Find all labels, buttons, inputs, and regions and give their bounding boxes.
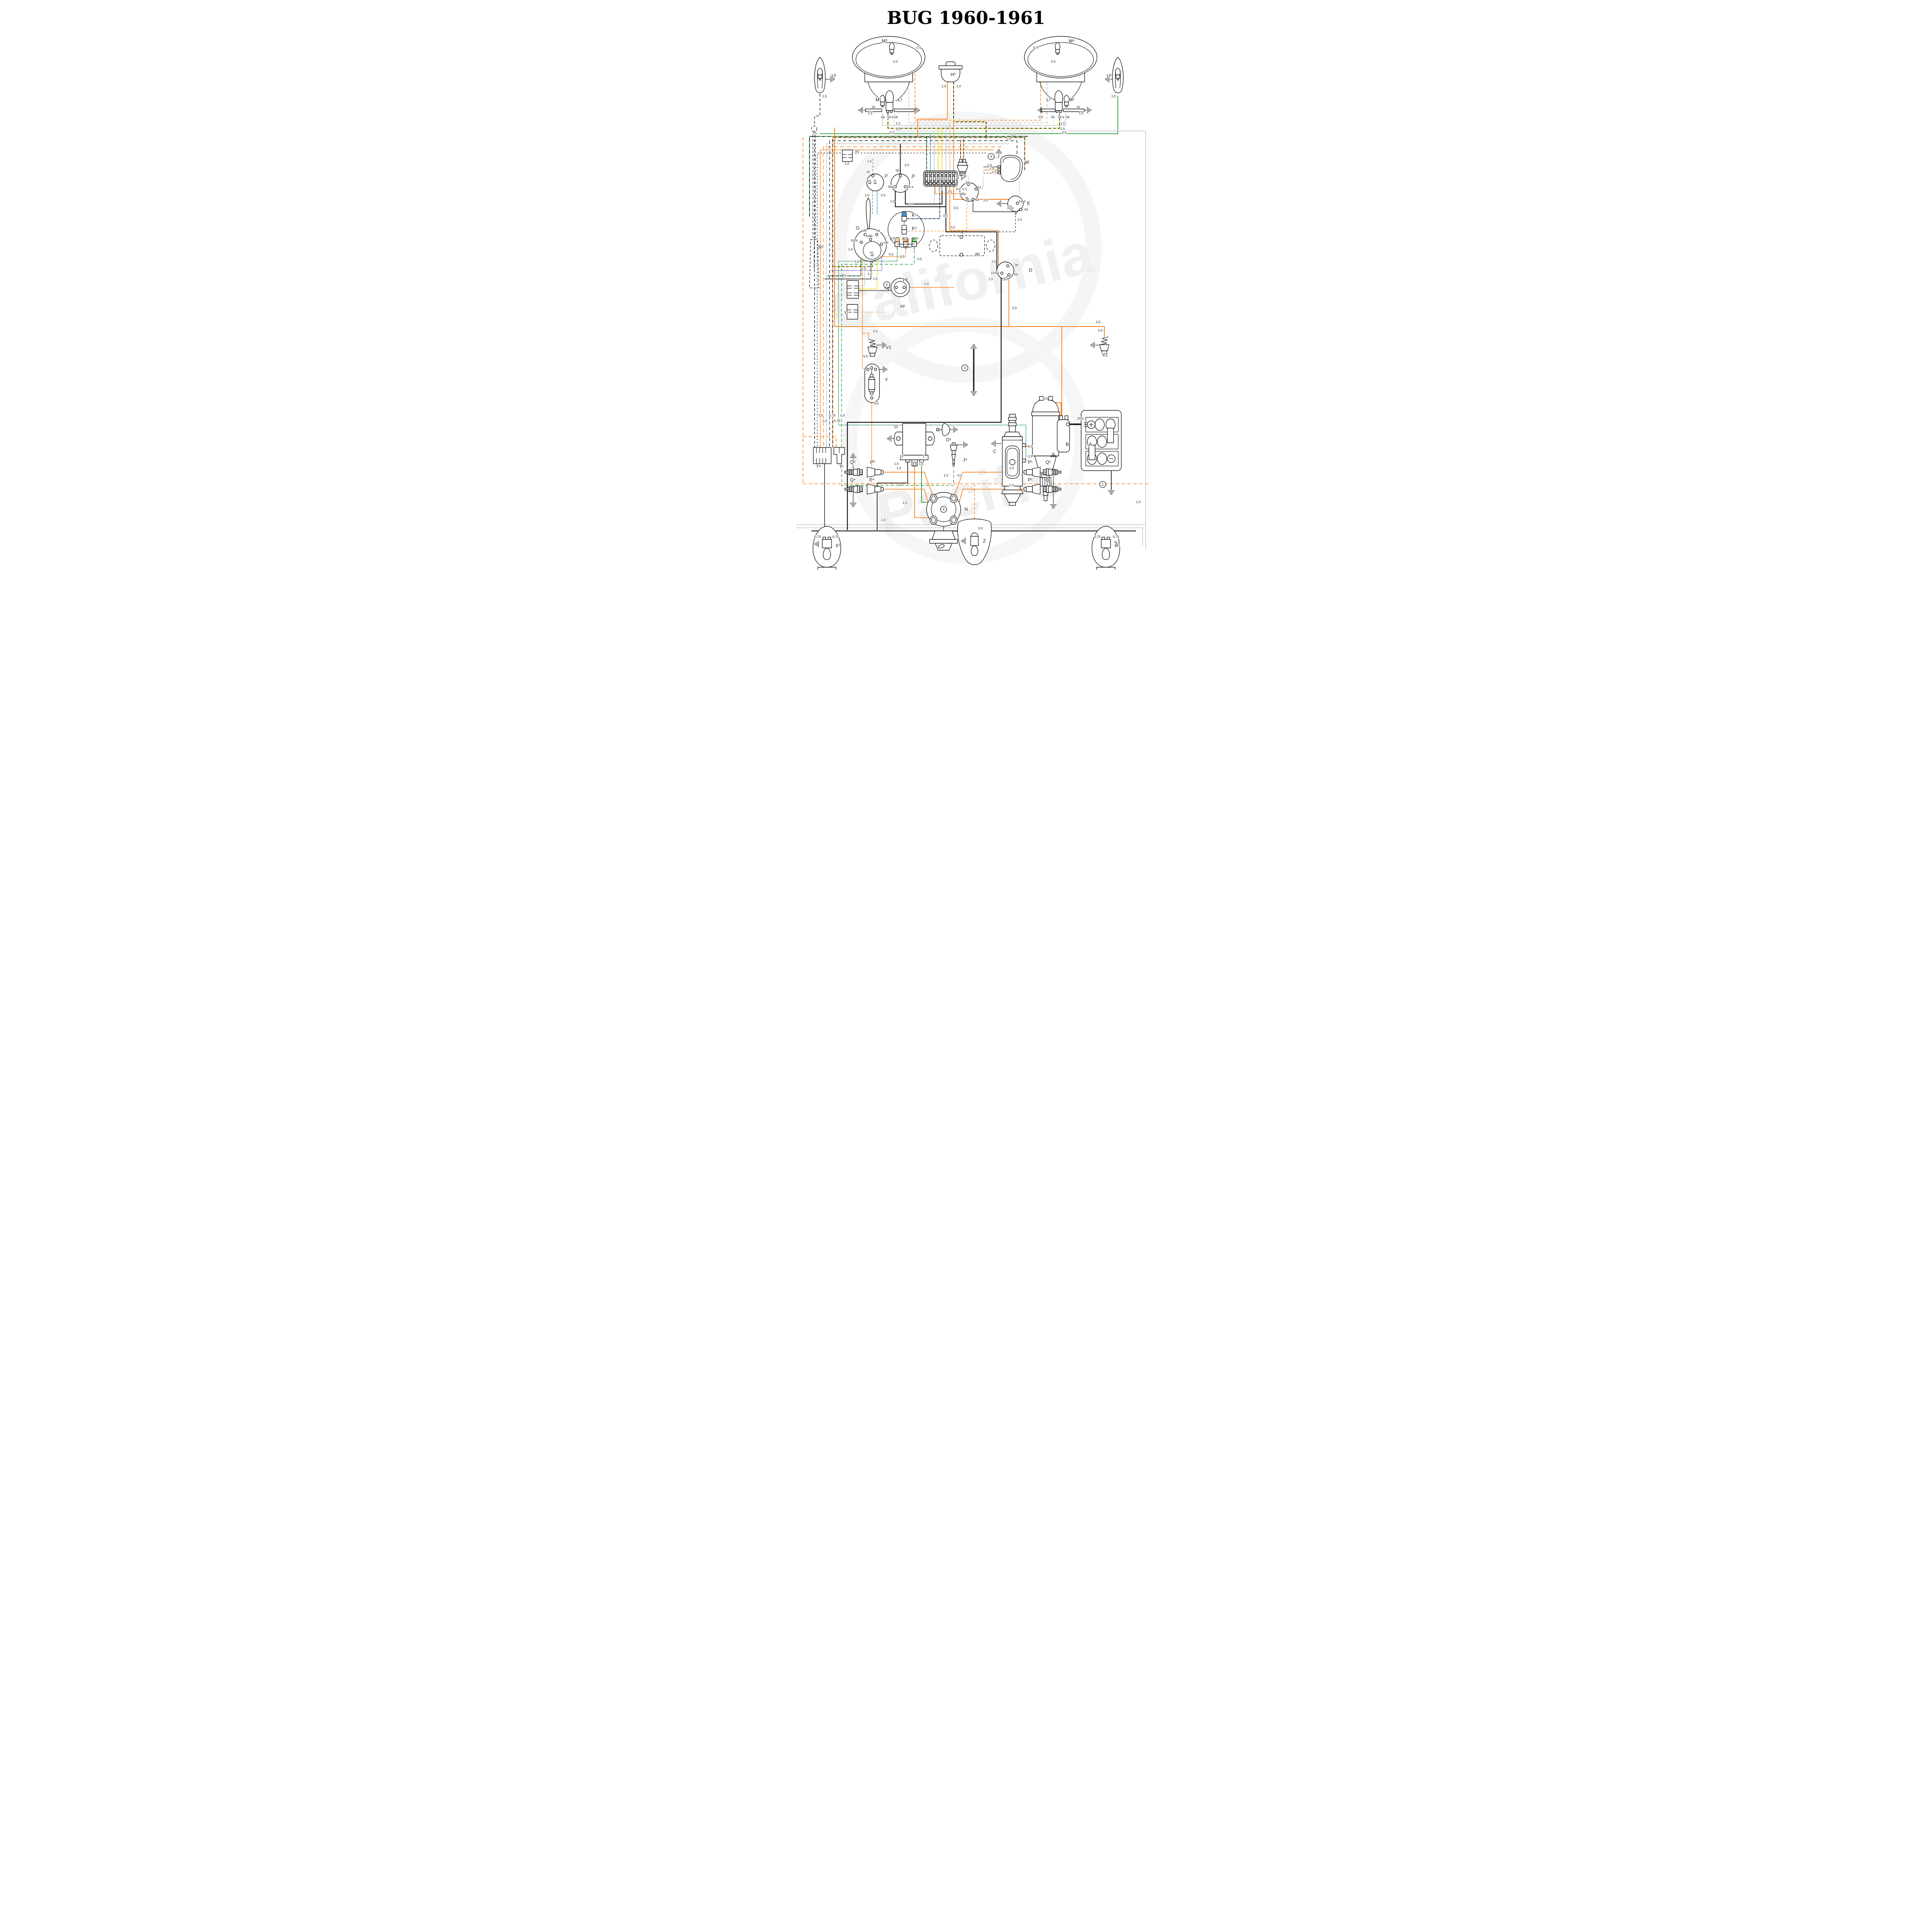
wire-gauge-label: 1,0 xyxy=(873,277,878,281)
wire-gauge-label: 1,5 xyxy=(867,159,872,163)
component-label: F xyxy=(961,176,964,182)
wire-gauge-label: 58 xyxy=(1066,115,1070,119)
wire-gauge-label: 1,0 xyxy=(1136,500,1141,504)
wire-gauge-label: 1,0 xyxy=(881,518,886,522)
callout-number: 4 xyxy=(942,507,944,511)
component-label: P⁴ xyxy=(869,477,874,483)
component-label: H¹ xyxy=(900,304,905,309)
ground-icon xyxy=(964,442,967,448)
wire-stripe xyxy=(954,82,986,139)
wire-gauge-label: 1,0 xyxy=(867,272,872,276)
wire-gauge-label: 1,0 xyxy=(896,466,901,470)
wire-gauge-label: 57 xyxy=(978,185,981,189)
wire-gauge-label: 1,5 xyxy=(1060,121,1065,125)
component-label: P³ xyxy=(870,459,875,465)
oil-pressure-switch-j4 xyxy=(950,443,957,466)
component-label: J¹ xyxy=(884,173,888,179)
wire-gauge-label: 2,5 xyxy=(1012,306,1017,310)
wire-gauge-label: 1,0 xyxy=(1011,132,1015,136)
component-label: P¹ xyxy=(1028,459,1032,465)
component-label: T² xyxy=(855,150,859,155)
wire-gauge-label: 58 b xyxy=(959,192,966,196)
wire-gauge-label: 1 xyxy=(923,454,925,458)
coil-o xyxy=(894,423,934,466)
wire-gauge-label: 1,5 xyxy=(938,187,943,191)
diagram-title: BUG 1960-1961 xyxy=(887,7,1045,28)
connector-t3-bottom xyxy=(813,447,831,464)
wire-gauge-label: 1,5 xyxy=(962,187,967,191)
wire-gauge-label: 54 d xyxy=(1019,199,1026,203)
component-label: X¹ xyxy=(835,543,840,548)
wire-gauge-label: 50 xyxy=(1014,272,1018,276)
component-label: A xyxy=(1089,442,1092,447)
wire-gauge-label: 2,5 xyxy=(992,260,996,264)
battery-minus-terminal xyxy=(1107,455,1115,463)
suppressor-v2 xyxy=(1100,337,1109,354)
battery-a xyxy=(1081,410,1121,471)
connector-t3-mid xyxy=(847,281,859,298)
wire-gauge-label: 1,0 xyxy=(924,282,929,286)
component-label: L² xyxy=(1046,97,1051,102)
wire-gauge-label: 1,5 xyxy=(868,111,872,115)
component-label: Q¹ xyxy=(1046,459,1051,465)
wire-gauge-label: 0,75 xyxy=(815,535,821,539)
wire-gauge-label: 0,75 xyxy=(1094,535,1101,539)
bug-1960-1961-wiring-diagram: California Pacific BUG 1960-1961 xyxy=(773,0,1159,570)
component-label: M³ xyxy=(882,38,887,44)
lamp-k2 xyxy=(895,237,900,250)
wire-gauge-label: HL xyxy=(876,229,881,233)
wire-gauge-label: 1,0 xyxy=(992,170,997,174)
ground-icon xyxy=(916,107,919,113)
wire-gauge-label: 1,0 xyxy=(956,84,961,88)
ground-icon xyxy=(1108,491,1114,494)
component-label: K¹ xyxy=(912,213,917,218)
component-label: L¹ xyxy=(898,97,902,102)
component-label: D xyxy=(1029,267,1032,273)
component-label: U² xyxy=(1107,73,1112,78)
ground-icon xyxy=(1091,342,1094,348)
wire-gauge-label: 0.5 xyxy=(1033,46,1038,49)
callout-number: 3 xyxy=(964,366,966,370)
plug-connector-p3 xyxy=(867,467,883,477)
wire-gauge-label: 0.5 xyxy=(1051,60,1056,63)
wiper-motor-w xyxy=(998,155,1022,182)
watermark: California Pacific xyxy=(824,120,1099,556)
wire-gauge-label: 1,0 xyxy=(861,267,866,270)
ground-icon xyxy=(850,503,856,507)
wire-gauge-label: 6,0 xyxy=(1043,396,1048,400)
headlight-bulb-l2 xyxy=(1055,90,1063,112)
wire-gauge-label: 0,5 xyxy=(1039,115,1043,119)
component-label: Q³ xyxy=(850,459,855,465)
fuse-box-s xyxy=(923,171,957,186)
wire-gauge-label: 0,5 xyxy=(890,131,895,134)
connector-t2-mid xyxy=(847,304,858,319)
wire-gauge-label: 0,5 xyxy=(900,255,905,259)
switch-j2 xyxy=(891,174,910,192)
wire-gauge-label: VL xyxy=(870,251,874,255)
wire-gauge-label: 0,5 xyxy=(881,193,886,197)
wire-gauge-label: 1,0 xyxy=(1017,218,1022,221)
wire-gauge-label: 0,75 xyxy=(834,419,840,423)
interior-light-y xyxy=(865,364,879,403)
vacuum-unit-o1 xyxy=(937,423,950,436)
wire-gauge-label: 6,0 xyxy=(1004,277,1009,281)
wire-gauge-label: 54 xyxy=(1024,207,1028,211)
ground-icon xyxy=(971,392,977,395)
wire-gauge-label: 1,5 xyxy=(894,462,899,466)
semaphore-u2 xyxy=(1112,57,1123,93)
ground-icon xyxy=(971,345,977,348)
ground-icon xyxy=(1087,107,1091,113)
component-label: T³ xyxy=(816,464,820,469)
wire-gauge-label: 54 xyxy=(867,179,871,183)
wire-gauge-label: 1,0 xyxy=(865,193,869,197)
wire-gauge-label: 56 a xyxy=(907,185,913,189)
wire-gauge-label: 56 b xyxy=(888,185,895,189)
lamp-k1 xyxy=(902,212,906,223)
wire-gauge-label: 56 xyxy=(896,168,900,172)
wire-gauge-label: 0,5 xyxy=(978,526,983,530)
ground-icon xyxy=(997,201,1001,207)
wire-gauge-label: 0,5 xyxy=(889,252,893,256)
wire-gauge-label: 31 xyxy=(1077,105,1080,109)
wire-gauge-label: 1,0 xyxy=(1006,137,1011,141)
component-label: W xyxy=(1025,160,1029,165)
wire-gauge-label: 54St xyxy=(851,238,858,242)
wire-gauge-label: 30 xyxy=(1015,263,1019,267)
wire-gauge-label: 1,0 xyxy=(1009,466,1014,470)
headlight-left xyxy=(852,36,925,112)
wiring-diagram-page: California Pacific BUG 1960-1961 xyxy=(773,0,1159,570)
component-label: O¹ xyxy=(946,437,951,442)
parking-bulb-m2 xyxy=(1064,95,1069,107)
component-label: J² xyxy=(911,173,915,179)
wire-gauge-label: 2,5 xyxy=(1096,320,1100,324)
ground-icon xyxy=(888,435,891,442)
wire-gauge-label: 1,5 xyxy=(919,462,923,466)
component-label: N xyxy=(964,507,968,512)
wire-gauge-label: 1,5 xyxy=(896,121,900,125)
component-label: T² xyxy=(844,311,848,316)
wire-gauge-label: 1,0 xyxy=(855,260,859,264)
wire-gauge-label: 30 xyxy=(966,197,969,201)
wire-gauge-label: 1,5 xyxy=(896,127,900,131)
wire-gauge-label: 56 b xyxy=(1058,115,1065,119)
component-label: V2 xyxy=(1102,352,1108,357)
component-label: Q⁴ xyxy=(850,477,856,483)
wire-gauge-label: 2,5 xyxy=(890,199,895,203)
connector-t1-bottom xyxy=(834,447,845,464)
headlight-bulb-l1 xyxy=(886,90,893,112)
component-label: O xyxy=(894,424,898,429)
ground-icon xyxy=(992,440,995,447)
wire-gauge-label: 15 xyxy=(866,170,870,174)
wire-gauge-label: K xyxy=(874,179,876,183)
component-label: H³ xyxy=(951,72,956,77)
speedometer-warning-lights xyxy=(888,211,924,250)
component-label: T³ xyxy=(842,274,846,279)
wire-gauge-label: 1,0 xyxy=(942,84,946,88)
component-label: K² xyxy=(890,236,895,241)
component-label: M¹ xyxy=(876,97,881,102)
bulb-m3 xyxy=(889,43,895,54)
component-label: U¹ xyxy=(832,73,837,78)
wire-gauge-label: 0.5 xyxy=(893,60,898,63)
wire-gauge-label: 31 b xyxy=(1007,206,1014,210)
wire-gauge-label: 2,5 xyxy=(905,163,909,167)
wire-gauge-label: 58 xyxy=(966,181,969,185)
component-label: K⁴ xyxy=(913,236,918,241)
wire-gauge-label: 1,0 xyxy=(1009,483,1014,487)
wire-gauge-label: VR xyxy=(862,229,867,233)
component-label: Z xyxy=(983,538,986,544)
component-label: R² xyxy=(818,245,823,250)
component-label: E xyxy=(1027,201,1030,206)
wire-gauge-label: 56 xyxy=(894,115,898,119)
wire-gauge-label: 0,5 xyxy=(873,329,878,333)
wire-gauge-label: 1,0 xyxy=(903,501,907,505)
wire-gauge-label: 1,0 xyxy=(944,473,948,477)
wire-gauge-label: 0,5 xyxy=(874,401,879,405)
bulb-m4 xyxy=(1055,43,1060,54)
component-label: S xyxy=(956,174,959,180)
wire-gauge-label: 0,5 xyxy=(863,354,868,358)
wire-gauge-label: 0,5 xyxy=(1098,328,1103,332)
wire-gauge-label: 0,5 xyxy=(943,214,948,218)
callout-number: 1 xyxy=(1102,483,1104,486)
component-label: P² xyxy=(1028,477,1032,483)
wire-gauge-label: HR xyxy=(884,241,888,245)
wire-gauge-label: 0,75 xyxy=(829,413,836,417)
wire-gauge-label: 1,5 xyxy=(1079,111,1083,115)
wire-gauge-label: 1,0 xyxy=(822,419,827,423)
wire-gauge-label: 31 xyxy=(872,105,876,109)
component-label: H² xyxy=(903,277,908,282)
wire-gauge-label: 0.5 xyxy=(917,46,921,49)
wire-gauge-label: 0,5 xyxy=(840,413,845,417)
wire-gauge-label: 1,0 xyxy=(896,483,901,487)
component-label: T¹ xyxy=(839,464,844,469)
wire-gauge-label: 25,0 xyxy=(1077,417,1084,420)
component-label: Q² xyxy=(1046,477,1051,483)
wire-gauge-label: 6,0 xyxy=(1028,444,1032,448)
wire-gauge-label: 56 xyxy=(1051,115,1055,119)
wire xyxy=(803,437,836,447)
wire-gauge-label: 56 xyxy=(975,198,979,202)
callout-number: 2 xyxy=(886,283,888,287)
wire-gauge-label: 56 b xyxy=(887,115,894,119)
wire-gauge-label: 0,75 xyxy=(1113,535,1119,539)
component-label: Y xyxy=(885,377,888,383)
wire-gauge-label: 15/54 xyxy=(991,271,999,275)
wire-gauge-label: 15 xyxy=(900,454,903,458)
distributor-n xyxy=(927,492,961,550)
component-label: B xyxy=(1066,442,1069,447)
wire xyxy=(862,333,866,368)
ground-icon xyxy=(954,427,957,433)
wire-gauge-label: 58 xyxy=(881,115,885,119)
wire-gauge-label: 0,5 xyxy=(1028,454,1032,458)
wire-gauge-label: 0,5 xyxy=(951,225,955,229)
wire-gauge-label: 1,0 xyxy=(818,413,823,417)
wire-gauge-label: 0,5 xyxy=(1062,131,1066,134)
wire-gauge-label: 1,5 xyxy=(812,131,817,135)
lamp-k5 xyxy=(902,225,906,234)
wire-gauge-label: 0,75 xyxy=(832,535,839,539)
wire-gauge-label: 2,5 xyxy=(909,202,913,206)
connector-t2-top xyxy=(842,150,852,162)
wire-gauge-label: 2,5 xyxy=(947,190,952,194)
wire-gauge-label: 0,5 xyxy=(917,257,922,261)
wire-gauge-label: 0,5 xyxy=(957,473,962,477)
component-label: X² xyxy=(1115,543,1120,548)
wire-gauge-label: 1,0 xyxy=(845,162,849,165)
semaphore-u1 xyxy=(815,57,825,93)
wire-gauge-label: 2,5 xyxy=(983,198,988,202)
component-label: M² xyxy=(1069,97,1074,102)
component-label: C xyxy=(993,449,997,454)
callout-number: 4 xyxy=(990,155,992,158)
component-label: K³ xyxy=(902,236,907,241)
wire-gauge-label: 1,5 xyxy=(1060,127,1065,131)
component-label: J⁴ xyxy=(963,457,967,463)
ground-icon xyxy=(996,150,1002,153)
wire-gauge-label: 1,5 xyxy=(1111,94,1116,98)
generator-c xyxy=(1002,414,1026,505)
component-label: V1 xyxy=(886,345,891,350)
component-label: K⁵ xyxy=(912,226,917,231)
wire-gauge-label: 0,5 xyxy=(954,206,958,210)
wire-gauge-label: 54Bl xyxy=(866,234,872,238)
wire-gauge-label: 1,5 xyxy=(988,277,993,281)
component-label: R¹ xyxy=(975,252,980,257)
wire xyxy=(954,82,986,139)
wire-gauge-label: 1,0 xyxy=(848,247,853,251)
wire-gauge-label: 1,5 xyxy=(822,94,827,98)
wire-gauge-label: 4,0 xyxy=(956,187,961,191)
ground-icon xyxy=(859,107,862,113)
component-label: M⁴ xyxy=(1069,38,1075,44)
component-label: G xyxy=(856,225,859,231)
